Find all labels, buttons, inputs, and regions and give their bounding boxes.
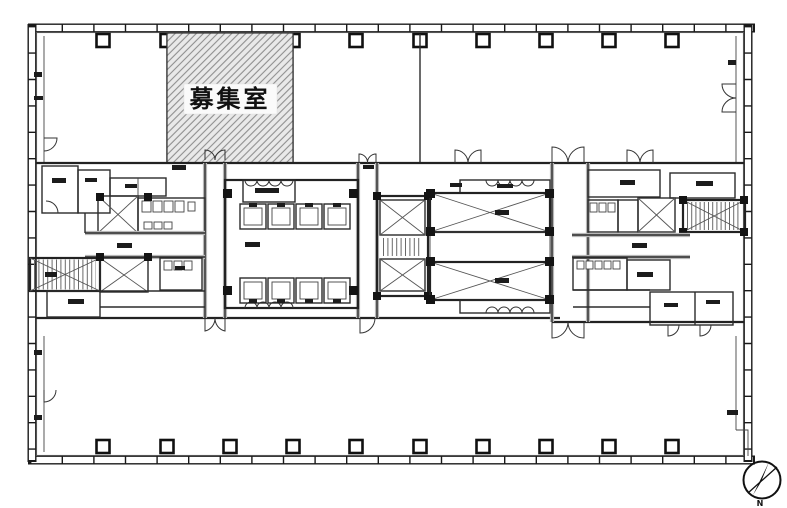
shaft-x — [380, 259, 425, 291]
wall-fixture — [727, 410, 738, 415]
rooms-bottom-right — [650, 292, 733, 325]
restroom — [138, 198, 205, 233]
column — [97, 34, 110, 47]
column — [350, 440, 363, 453]
floor-plan-drawing: 募集室 — [0, 0, 787, 508]
column — [161, 440, 174, 453]
vacant-room-label: 募集室 — [189, 85, 271, 113]
column — [350, 34, 363, 47]
wall-fixture — [728, 60, 736, 65]
wall-fixture — [34, 72, 42, 77]
column — [414, 440, 427, 453]
shaft-x — [380, 200, 425, 235]
room — [618, 200, 638, 232]
corridor — [85, 213, 205, 257]
large-shaft-x — [430, 262, 550, 300]
elevator-car-row-bottom — [240, 278, 350, 303]
restroom — [573, 258, 627, 290]
column — [603, 440, 616, 453]
column — [287, 440, 300, 453]
core-left — [30, 166, 205, 317]
stairwell-left — [30, 258, 100, 291]
wall-fixture — [34, 415, 42, 420]
floor-plan-page: 募集室 — [0, 0, 787, 508]
large-shaft-x — [430, 193, 550, 232]
column — [540, 440, 553, 453]
wall-fixture — [34, 350, 42, 355]
stairwell-right — [679, 196, 748, 236]
compass-diagonal — [748, 467, 777, 493]
stairwell-center — [373, 192, 432, 300]
column — [224, 440, 237, 453]
elevator-car-row-top — [240, 203, 350, 229]
column — [97, 440, 110, 453]
tenant-fixtures — [172, 165, 462, 187]
elevator-bank — [223, 180, 358, 308]
vacant-room: 募集室 — [167, 33, 293, 163]
shaft-x — [100, 258, 148, 292]
north-needle — [753, 462, 769, 495]
shaft-halls — [426, 180, 554, 313]
column — [540, 34, 553, 47]
lobby-fixture — [245, 242, 260, 247]
wall-fixture — [34, 96, 43, 100]
shaft-x — [638, 198, 675, 232]
gray-service-zone — [430, 232, 550, 262]
column — [477, 34, 490, 47]
room — [42, 166, 78, 213]
column — [603, 34, 616, 47]
restroom — [588, 200, 618, 232]
column — [666, 34, 679, 47]
compass-label: N — [757, 499, 764, 508]
column — [477, 440, 490, 453]
column-grid-bottom — [97, 440, 679, 453]
shaft-x — [98, 196, 138, 233]
hall-vestibule — [460, 300, 550, 313]
compass: N — [744, 462, 781, 508]
room — [78, 170, 110, 213]
core-band — [36, 163, 744, 322]
core-right — [572, 170, 748, 325]
restroom — [160, 258, 202, 290]
column — [666, 440, 679, 453]
